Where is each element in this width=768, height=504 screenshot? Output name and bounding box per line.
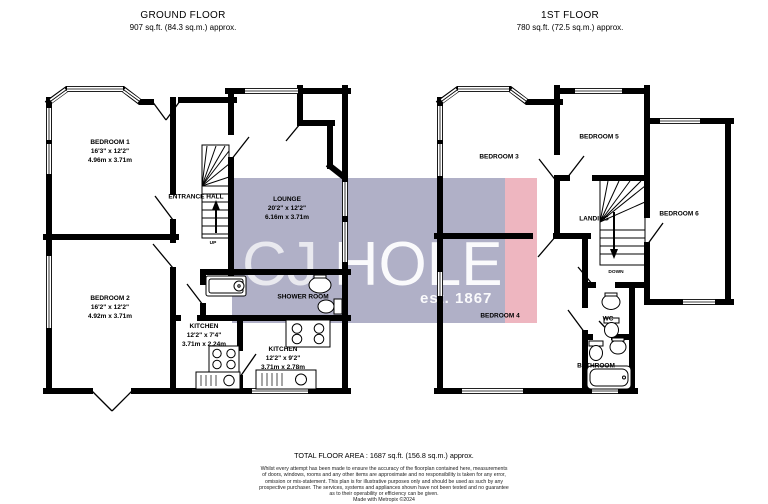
disclaimer: Whilst every attempt has been made to en… bbox=[184, 466, 584, 504]
first-floor-title: 1ST FLOOR 780 sq.ft. (72.5 sq.m.) approx… bbox=[475, 10, 665, 32]
room-label-landing: LANDING bbox=[579, 216, 609, 225]
hob bbox=[286, 320, 330, 347]
basin bbox=[610, 340, 626, 354]
room-label-bedroom-5: BEDROOM 5 bbox=[579, 134, 618, 143]
hob bbox=[209, 346, 239, 372]
room-label-bedroom-3: BEDROOM 3 bbox=[479, 154, 518, 163]
basin bbox=[309, 277, 331, 293]
ground-floor-title: GROUND FLOOR 907 sq.ft. (84.3 sq.m.) app… bbox=[88, 10, 278, 32]
staircase-ground bbox=[202, 145, 229, 238]
room-label-kitchen-small: KITCHEN 12'2" x 7'4" 3.71m x 2.24m bbox=[182, 323, 226, 349]
room-label-wc: WC bbox=[603, 316, 614, 325]
room-label-bedroom-4: BEDROOM 4 bbox=[480, 313, 519, 322]
floor-name: 1ST FLOOR bbox=[475, 10, 665, 21]
floor-area: 907 sq.ft. (84.3 sq.m.) approx. bbox=[88, 23, 278, 32]
credit-line: Made with Metropix ©2024 bbox=[184, 497, 584, 503]
room-label-entrance-hall: ENTRANCE HALL bbox=[168, 194, 223, 203]
floorplan-drawing bbox=[0, 0, 768, 504]
total-floor-area: TOTAL FLOOR AREA : 1687 sq.ft. (156.8 sq… bbox=[234, 451, 534, 460]
room-label-shower-room: SHOWER ROOM bbox=[277, 294, 328, 303]
room-label-bathroom: BATHROOM bbox=[577, 363, 615, 372]
room-label-kitchen-large: KITCHEN 12'2" x 9'2" 3.71m x 2.78m bbox=[261, 346, 305, 372]
room-label-bedroom-1: BEDROOM 1 16'3" x 12'2" 4.96m x 3.71m bbox=[88, 139, 132, 165]
room-label-bedroom-6: BEDROOM 6 bbox=[659, 211, 698, 220]
room-label-bedroom-2: BEDROOM 2 16'2" x 12'2" 4.92m x 3.71m bbox=[88, 295, 132, 321]
toilet bbox=[334, 299, 342, 314]
floor-name: GROUND FLOOR bbox=[88, 10, 278, 21]
floor-area: 780 sq.ft. (72.5 sq.m.) approx. bbox=[475, 23, 665, 32]
stairs-up-label: UP bbox=[210, 241, 217, 247]
walls bbox=[46, 88, 731, 391]
floorplan-page: CJHOLE est. 1867 bbox=[0, 0, 768, 504]
stairs-down-label: DOWN bbox=[608, 270, 623, 276]
room-label-lounge: LOUNGE 20'2" x 12'2" 6.16m x 3.71m bbox=[265, 196, 309, 222]
basin bbox=[602, 295, 620, 310]
